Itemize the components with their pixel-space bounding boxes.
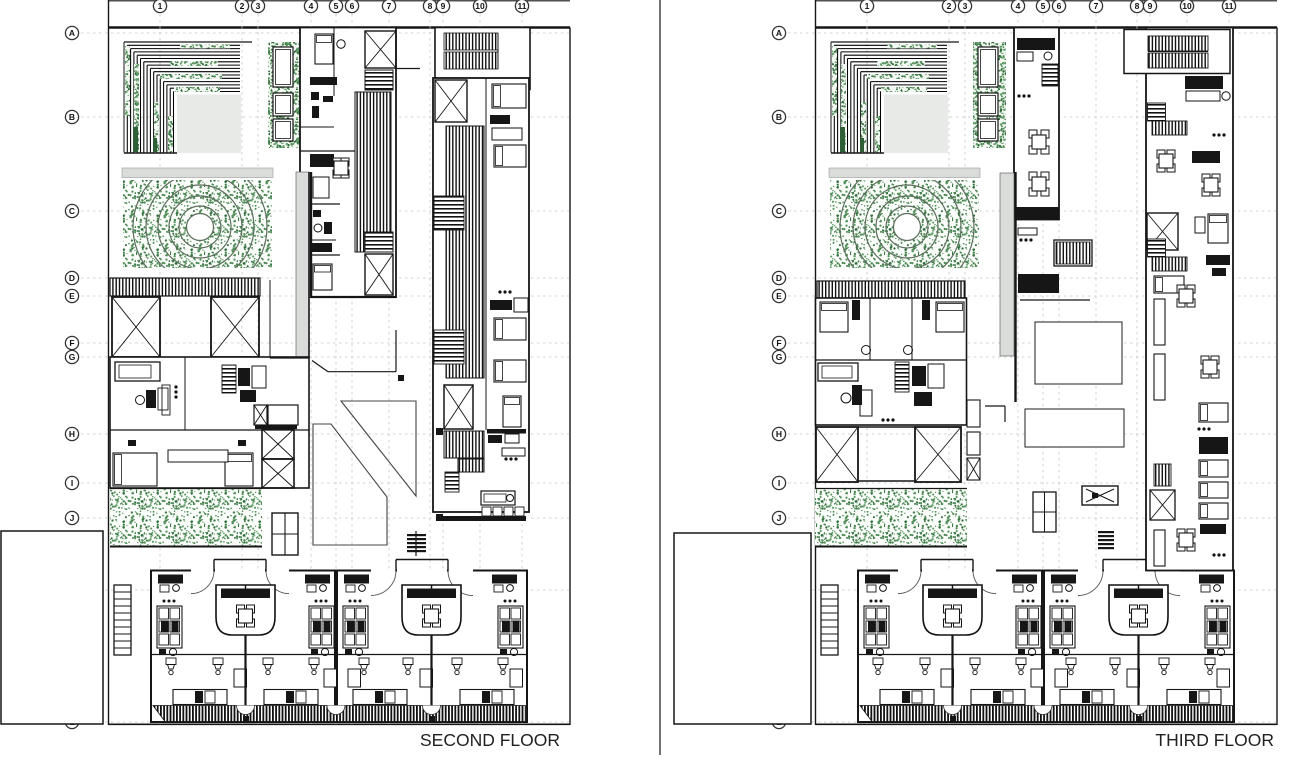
svg-text:A: A bbox=[776, 28, 782, 38]
svg-text:3: 3 bbox=[963, 1, 968, 11]
svg-text:4: 4 bbox=[1016, 1, 1021, 11]
svg-text:2: 2 bbox=[240, 1, 245, 11]
svg-text:3: 3 bbox=[256, 1, 261, 11]
svg-text:H: H bbox=[69, 429, 75, 439]
svg-text:8: 8 bbox=[1135, 1, 1140, 11]
svg-text:I: I bbox=[778, 478, 780, 488]
svg-text:C: C bbox=[776, 206, 782, 216]
svg-text:J: J bbox=[777, 513, 782, 523]
svg-text:D: D bbox=[69, 273, 75, 283]
svg-text:5: 5 bbox=[334, 1, 339, 11]
svg-text:SECOND FLOOR: SECOND FLOOR bbox=[420, 730, 560, 750]
svg-text:5: 5 bbox=[1041, 1, 1046, 11]
svg-text:1: 1 bbox=[865, 1, 870, 11]
svg-text:6: 6 bbox=[1057, 1, 1062, 11]
svg-text:H: H bbox=[776, 429, 782, 439]
svg-text:4: 4 bbox=[309, 1, 314, 11]
svg-text:10: 10 bbox=[475, 1, 485, 11]
svg-text:1: 1 bbox=[158, 1, 163, 11]
svg-text:C: C bbox=[69, 206, 75, 216]
svg-text:9: 9 bbox=[1148, 1, 1153, 11]
svg-text:F: F bbox=[69, 338, 74, 348]
svg-text:9: 9 bbox=[441, 1, 446, 11]
svg-text:8: 8 bbox=[428, 1, 433, 11]
svg-text:11: 11 bbox=[1225, 1, 1234, 11]
svg-text:7: 7 bbox=[1094, 1, 1099, 11]
svg-text:6: 6 bbox=[350, 1, 355, 11]
svg-text:B: B bbox=[776, 112, 782, 122]
svg-text:E: E bbox=[69, 291, 75, 301]
svg-text:2: 2 bbox=[947, 1, 952, 11]
svg-text:11: 11 bbox=[518, 1, 527, 11]
svg-text:G: G bbox=[776, 352, 783, 362]
svg-text:THIRD FLOOR: THIRD FLOOR bbox=[1155, 730, 1274, 750]
svg-text:E: E bbox=[776, 291, 782, 301]
svg-text:B: B bbox=[69, 112, 75, 122]
svg-text:G: G bbox=[69, 352, 76, 362]
svg-text:I: I bbox=[71, 478, 73, 488]
svg-text:J: J bbox=[70, 513, 75, 523]
svg-text:7: 7 bbox=[387, 1, 392, 11]
svg-text:10: 10 bbox=[1182, 1, 1192, 11]
svg-text:A: A bbox=[69, 28, 75, 38]
svg-text:D: D bbox=[776, 273, 782, 283]
svg-text:F: F bbox=[776, 338, 781, 348]
